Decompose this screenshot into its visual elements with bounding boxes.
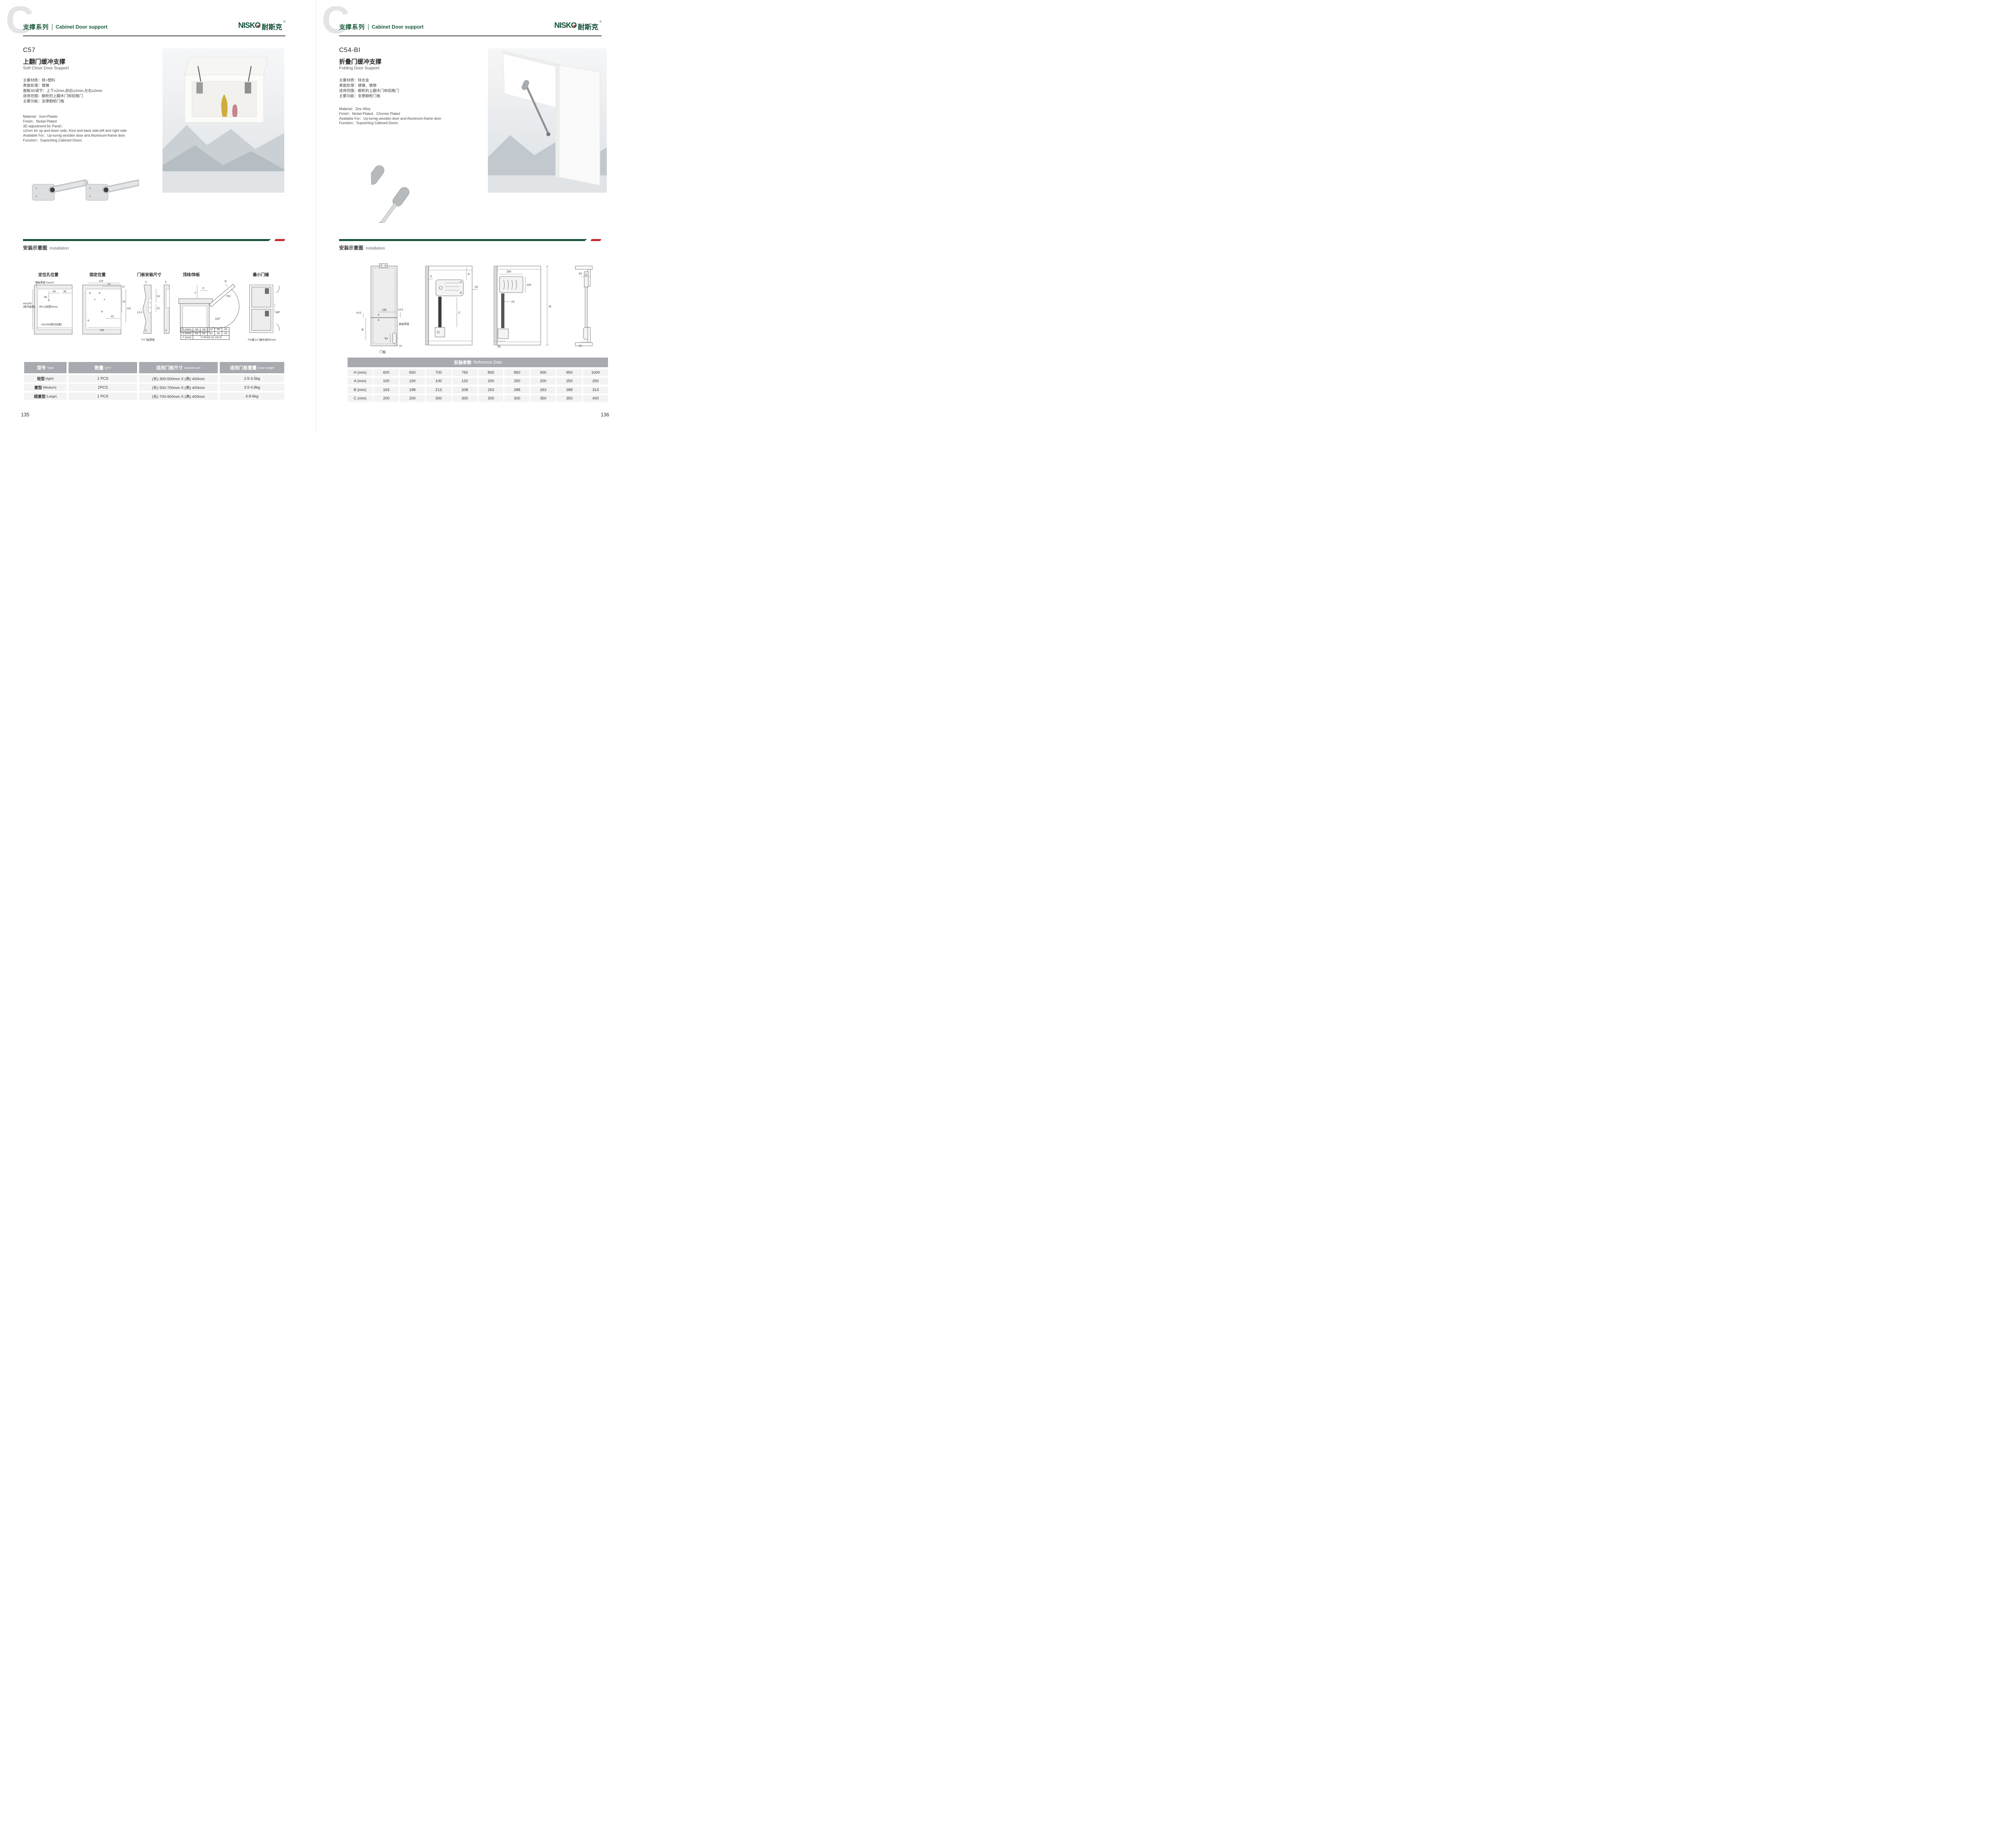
table-cell: 34 bbox=[215, 332, 222, 336]
spec-line: 主要功能：支撑橱柜门板 bbox=[339, 94, 399, 99]
page-number: 135 bbox=[21, 412, 29, 418]
installation-diagrams: 14.5 135 14.5 B 侧板厚度 54 12 门板 bbox=[339, 261, 602, 355]
dim-label: B bbox=[362, 329, 364, 331]
table-cell: 120 bbox=[452, 378, 477, 385]
brand-name: NISKO bbox=[238, 21, 260, 30]
series-title-cn: 支撑系列 bbox=[23, 23, 49, 31]
diagram-caption: 门板 bbox=[379, 350, 386, 354]
table-cell: 313 bbox=[583, 387, 608, 393]
diagram-crown-panel bbox=[179, 284, 239, 333]
product-code: C57 bbox=[23, 47, 35, 54]
series-header: 支撑系列 Cabinet Door support bbox=[339, 23, 423, 31]
table-cell: 200 bbox=[479, 378, 504, 385]
diagram-note: T=门板厚度 bbox=[141, 338, 155, 341]
dim-label: 49 bbox=[44, 296, 47, 299]
spec-line: Function：Supoorting Cabined Doors bbox=[23, 138, 127, 143]
registered-mark: ® bbox=[283, 21, 285, 23]
table-cell: 200 bbox=[400, 395, 425, 402]
section-divider bbox=[339, 239, 602, 241]
diagram-title: 定位孔位置 bbox=[38, 272, 58, 277]
spec-line: 3D adjustment for Panel： bbox=[23, 124, 127, 129]
spec-line: Available For：Up-turnig wooden door and … bbox=[23, 133, 127, 138]
table-header-cell: 适用门板重量Door weight bbox=[220, 362, 284, 373]
dim-label: A bbox=[468, 273, 470, 276]
brand-name-cn: 耐斯克 bbox=[262, 21, 282, 31]
dim-label: MF bbox=[276, 311, 280, 314]
spec-line: Finish：Nickel Plated、Chrome Plated bbox=[339, 112, 441, 116]
table-cell: 350 bbox=[557, 395, 582, 402]
table-cell: 300 bbox=[479, 395, 504, 402]
table-cell: 超重型(Large) bbox=[24, 393, 67, 400]
spec-line: 主要材质：铁+塑料 bbox=[23, 78, 102, 83]
product-render bbox=[371, 152, 450, 223]
table-row: 重型(Medium)1PCS(长) 500-700mm X (高) 400mm3… bbox=[24, 384, 284, 391]
diagram-title: 固定位置 bbox=[90, 272, 106, 277]
spec-line: 表面处理：镀镍 bbox=[23, 83, 102, 88]
installation-title-en: Installation bbox=[50, 246, 69, 251]
brand-logo: NISKO 耐斯克 ® bbox=[238, 21, 285, 31]
reference-title-en: Reference Data bbox=[473, 360, 502, 365]
dim-label: 102 bbox=[527, 284, 531, 287]
dim-label: C bbox=[458, 312, 460, 314]
table-cell: 263 bbox=[531, 387, 556, 393]
dim-label: min200 bbox=[23, 302, 32, 305]
table-row-label: B (mm) bbox=[348, 387, 373, 393]
spec-line: 主要功能：支撑橱柜门板 bbox=[23, 99, 102, 104]
product-name-en: Soft Close Door Support bbox=[23, 66, 69, 71]
series-divider bbox=[368, 24, 369, 30]
dim-label: 52 bbox=[108, 283, 111, 286]
dim-label: 24 bbox=[579, 272, 582, 275]
table-row: D (mm)1618222628 bbox=[181, 328, 229, 332]
pink-vase bbox=[232, 104, 237, 117]
product-name-en: Folding Door Support bbox=[339, 66, 379, 71]
dim-label: X bbox=[202, 287, 204, 290]
table-row: C (mm)200200300300300300350350400 bbox=[348, 395, 608, 402]
installation-title-cn: 安装示意图 bbox=[339, 245, 363, 251]
table-cell: 250 bbox=[557, 378, 582, 385]
table-cell: 2.5-3.5kg bbox=[220, 375, 284, 382]
table-row: 超重型(Large)1 PCS(长) 700-900mm X (高) 400mm… bbox=[24, 393, 284, 400]
table-row-label: D (mm) bbox=[181, 328, 193, 332]
table-cell: 29 bbox=[222, 332, 229, 336]
table-cell: 3.5-4.8kg bbox=[220, 384, 284, 391]
table-cell: 28 bbox=[222, 328, 229, 332]
dim-label: 54 bbox=[385, 337, 388, 340]
table-cell: 288 bbox=[504, 387, 529, 393]
watermark-letter: C bbox=[322, 1, 350, 40]
diagram-min-gap bbox=[250, 285, 279, 333]
support-unit bbox=[86, 179, 139, 200]
dim-label: 135 bbox=[382, 309, 387, 312]
diagram-side-profile bbox=[575, 266, 592, 346]
series-divider bbox=[52, 24, 52, 30]
spec-line: Material：Zinc Alloy bbox=[339, 107, 441, 112]
spec-line: Material：Iron+Plastic bbox=[23, 114, 127, 119]
table-cell: 750 bbox=[452, 369, 477, 376]
spec-line: ±2mm for up and down side, front and bac… bbox=[23, 129, 127, 133]
product-name-cn: 折叠门缓冲支撑 bbox=[339, 57, 381, 66]
header-rule bbox=[23, 35, 285, 36]
dim-label: 12 bbox=[122, 285, 125, 288]
table-cell: (长) 700-900mm X (高) 400mm bbox=[139, 393, 218, 400]
table-cell: 250 bbox=[583, 378, 608, 385]
dim-label: 12.5 bbox=[137, 311, 142, 314]
specs-cn: 主要材质：铁+塑料表面处理：镀镍面板3D调节：上下±2mm,前后±2mm,左右±… bbox=[23, 78, 102, 104]
reference-title-cn: 安装参数 bbox=[454, 359, 471, 366]
table-cell: 22 bbox=[208, 328, 215, 332]
dim-label: H bbox=[549, 305, 551, 308]
series-title-en: Cabinet Door support bbox=[56, 24, 107, 30]
installation-diagrams: 定位孔位置 顶板厚度 max22 49 64 36 Φ5.2(深度5mm) mi… bbox=[23, 264, 285, 347]
dim-label: 50 bbox=[498, 345, 501, 348]
page-number: 136 bbox=[601, 412, 609, 418]
watermark-letter: C bbox=[6, 1, 33, 40]
dim-label: 124 bbox=[99, 280, 103, 283]
dim-label: 12 bbox=[399, 345, 402, 347]
diagram-note: Fm最小门缝开启时2mm bbox=[248, 338, 276, 341]
table-cell: 288 bbox=[557, 387, 582, 393]
brand-logo: NISKO 耐斯克 ® bbox=[554, 21, 602, 31]
dim-label: 5 bbox=[430, 275, 432, 278]
table-row: H (mm)6006507007508008509009501000 bbox=[348, 369, 608, 376]
dim-label: 81 bbox=[123, 300, 126, 303]
dim-label: FH bbox=[227, 295, 230, 298]
dim-label: 32 bbox=[157, 307, 160, 310]
table-row-label: A (mm) bbox=[348, 378, 373, 385]
table-row: 轻型(light)1 PCS(长) 300-500mm X (高) 400mm2… bbox=[24, 375, 284, 382]
dim-label: 64 bbox=[53, 290, 56, 293]
installation-heading: 安装示意图Installation bbox=[23, 244, 69, 252]
spec-line: 适用范围：橱柜的上翻木门和铝框门 bbox=[23, 94, 102, 99]
table-cell: 50 bbox=[200, 332, 208, 336]
diagram-cabinet-mechanism bbox=[425, 266, 478, 345]
table-cell: 850 bbox=[504, 369, 529, 376]
dim-label: 115 bbox=[127, 307, 131, 310]
dim-label: 14.5 bbox=[398, 308, 403, 311]
table-cell: 1000 bbox=[583, 369, 608, 376]
dim-label: min230(柜内深度) bbox=[41, 322, 62, 326]
diagram-fixing-position bbox=[83, 283, 126, 334]
dxy-reference-table: D (mm)1618222628X (mm)5550423429Y (mm)Y=… bbox=[181, 327, 229, 340]
table-cell: 42 bbox=[208, 332, 215, 336]
table-cell: 100 bbox=[374, 378, 399, 385]
table-cell: (长) 500-700mm X (高) 400mm bbox=[139, 384, 218, 391]
dim-label: T bbox=[145, 281, 147, 284]
product-name-cn: 上翻门缓冲支撑 bbox=[23, 57, 65, 66]
table-cell: 213 bbox=[426, 387, 451, 393]
table-cell: 1 PCS bbox=[69, 375, 137, 382]
brand-logo-dot bbox=[573, 25, 575, 27]
table-cell: 重型(Medium) bbox=[24, 384, 67, 391]
page-right: C 支撑系列 Cabinet Door support NISKO 耐斯克 ® … bbox=[316, 0, 632, 432]
dim-label: 53 bbox=[157, 295, 160, 298]
table-cell: 900 bbox=[531, 369, 556, 376]
dim-label: 19 bbox=[475, 286, 478, 289]
table-cell: 1PCS bbox=[69, 384, 137, 391]
dim-label: 110° bbox=[215, 317, 221, 320]
table-cell: 263 bbox=[479, 387, 504, 393]
dim-label: 14.5 bbox=[356, 312, 361, 314]
table-cell: 350 bbox=[531, 395, 556, 402]
catalog-spread: C 支撑系列 Cabinet Door support NISKO 耐斯克 ® … bbox=[0, 0, 632, 432]
spec-line: 面板3D调节：上下±2mm,前后±2mm,左右±2mm bbox=[23, 88, 102, 94]
installation-title-cn: 安装示意图 bbox=[23, 245, 47, 251]
dim-label: 42 bbox=[111, 315, 114, 318]
dim-label: 193 bbox=[506, 270, 511, 273]
dim-label: Φ5.2(深度5mm) bbox=[39, 305, 58, 308]
diagram-title: 门板安装尺寸 bbox=[137, 272, 161, 277]
dim-label: (柜内高度) bbox=[23, 305, 35, 308]
installation-heading: 安装示意图Installation bbox=[339, 244, 385, 252]
reference-table-header: 安装参数 Reference Data bbox=[348, 358, 608, 367]
diagram-door-panel bbox=[363, 264, 400, 346]
series-title-cn: 支撑系列 bbox=[339, 23, 365, 31]
table-cell: (长) 300-500mm X (高) 400mm bbox=[139, 375, 218, 382]
table-cell: 950 bbox=[557, 369, 582, 376]
dim-label: 顶板厚度 max22 bbox=[35, 281, 54, 284]
section-divider bbox=[23, 239, 285, 241]
registered-mark: ® bbox=[600, 21, 602, 23]
installation-title-en: Installation bbox=[366, 246, 385, 251]
table-cell: 300 bbox=[426, 395, 451, 402]
spec-line: 适用范围：橱柜的上翻木门和铝框门 bbox=[339, 88, 399, 94]
dim-label: D bbox=[225, 280, 227, 283]
spec-line: 表面处理：镀镍、镀铬 bbox=[339, 83, 399, 88]
product-photo bbox=[162, 48, 284, 193]
support-arm bbox=[371, 164, 386, 218]
diagram-cabinet-arm bbox=[494, 266, 549, 345]
table-cell: 200 bbox=[374, 395, 399, 402]
dim-label: T bbox=[165, 330, 167, 333]
product-table-header: 型号Type数量QTY适用门板尺寸Cabinet size适用门板重量Door … bbox=[24, 362, 284, 373]
table-row-label: C (mm) bbox=[348, 395, 373, 402]
specs-en: Material：Iron+PlasticFinish：Nickel Plate… bbox=[23, 114, 127, 143]
dim-label: T bbox=[165, 281, 167, 284]
cabinet-scene bbox=[185, 57, 268, 123]
table-cell: 200 bbox=[531, 378, 556, 385]
table-row-label: Y (mm) bbox=[181, 336, 193, 340]
support-unit bbox=[32, 179, 88, 200]
table-row: X (mm)5550423429 bbox=[181, 332, 229, 336]
support-arm bbox=[371, 185, 411, 223]
spec-line: Finish：Nickel Plated bbox=[23, 119, 127, 124]
table-row-label: X (mm) bbox=[181, 332, 193, 336]
dim-label: 23 bbox=[511, 301, 514, 304]
table-cell: 轻型(light) bbox=[24, 375, 67, 382]
table-cell: 26 bbox=[215, 328, 222, 332]
table-row-label: H (mm) bbox=[348, 369, 373, 376]
table-row: B (mm)163188213208263288263288313 bbox=[348, 387, 608, 393]
table-row: A (mm)100150100120200250200250250 bbox=[348, 378, 608, 385]
reference-table: 安装参数 Reference Data H (mm)60065070075080… bbox=[348, 358, 608, 402]
product-photo bbox=[488, 48, 607, 193]
table-row: Y (mm)Y=FHx0.31-15+D bbox=[181, 336, 229, 340]
dim-label: 36 bbox=[63, 290, 67, 293]
table-cell: 600 bbox=[374, 369, 399, 376]
table-cell: 4.8-6kg bbox=[220, 393, 284, 400]
table-cell: 55 bbox=[193, 332, 200, 336]
brand-name-cn: 耐斯克 bbox=[578, 21, 598, 31]
spec-line: 主要材质：锌合金 bbox=[339, 78, 399, 83]
table-cell: 250 bbox=[504, 378, 529, 385]
dim-label: 侧板厚度 bbox=[399, 322, 410, 326]
product-render bbox=[30, 171, 139, 212]
brand-logo-dot bbox=[257, 25, 259, 27]
dim-label: 146 bbox=[100, 329, 104, 332]
dim-label: Y bbox=[194, 292, 196, 295]
dim-label: 12 bbox=[579, 345, 582, 347]
spec-line: Function：Supoorting Cabined Doors bbox=[339, 121, 441, 126]
specs-cn: 主要材质：锌合金表面处理：镀镍、镀铬适用范围：橱柜的上翻木门和铝框门主要功能：支… bbox=[339, 78, 399, 99]
header-rule bbox=[339, 35, 602, 36]
diagram-title: 最小门缝 bbox=[253, 272, 269, 277]
table-cell: 300 bbox=[452, 395, 477, 402]
table-cell: 188 bbox=[400, 387, 425, 393]
table-cell: 1 PCS bbox=[69, 393, 137, 400]
series-header: 支撑系列 Cabinet Door support bbox=[23, 23, 107, 31]
specs-en: Material：Zinc AlloyFinish：Nickel Plated、… bbox=[339, 107, 441, 126]
diagram-door-mounting bbox=[143, 285, 169, 333]
product-table: 型号Type数量QTY适用门板尺寸Cabinet size适用门板重量Door … bbox=[24, 362, 284, 400]
diagram-title: 顶线/饰板 bbox=[183, 272, 200, 277]
table-header-cell: 适用门板尺寸Cabinet size bbox=[139, 362, 218, 373]
table-cell: 650 bbox=[400, 369, 425, 376]
table-cell: 400 bbox=[583, 395, 608, 402]
table-cell: 18 bbox=[200, 328, 208, 332]
product-code: C54-BI bbox=[339, 47, 360, 54]
dim-label: T bbox=[145, 330, 147, 333]
table-cell: 208 bbox=[452, 387, 477, 393]
table-cell: 163 bbox=[374, 387, 399, 393]
table-cell: 300 bbox=[504, 395, 529, 402]
table-header-cell: 数量QTY bbox=[69, 362, 137, 373]
brand-name: NISKO bbox=[554, 21, 577, 30]
table-cell: 100 bbox=[426, 378, 451, 385]
table-header-cell: 型号Type bbox=[24, 362, 67, 373]
series-title-en: Cabinet Door support bbox=[372, 24, 423, 30]
page-left: C 支撑系列 Cabinet Door support NISKO 耐斯克 ® … bbox=[0, 0, 316, 432]
page-gutter bbox=[316, 0, 316, 432]
table-cell: 700 bbox=[426, 369, 451, 376]
table-cell: 150 bbox=[400, 378, 425, 385]
table-cell: 800 bbox=[479, 369, 504, 376]
table-cell: 16 bbox=[193, 328, 200, 332]
spec-line: Available For：Up-turnig wooden door and … bbox=[339, 116, 441, 121]
table-cell: Y=FHx0.31-15+D bbox=[193, 336, 229, 340]
